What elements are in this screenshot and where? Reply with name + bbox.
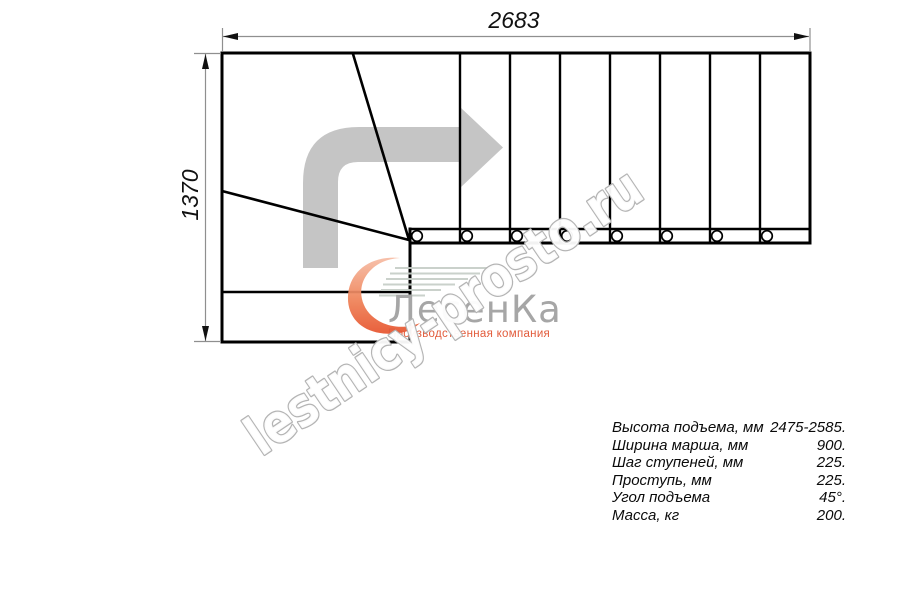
connector-hole	[512, 231, 523, 242]
spec-label: Масса, кг	[612, 507, 679, 525]
company-tagline: Производственная компания	[388, 328, 562, 340]
connector-hole	[462, 231, 473, 242]
spec-label: Высота подъема, мм	[612, 419, 764, 437]
stair-drawing-page: 2683 1370 ЛесенКа Производственная компа…	[0, 0, 900, 600]
dimension-height-label: 1370	[177, 158, 201, 232]
spec-label: Шаг ступеней, мм	[612, 454, 743, 472]
spec-row: Масса, кг 200.	[612, 507, 846, 525]
spec-label: Угол подъема	[612, 489, 710, 507]
spec-value: 225.	[817, 472, 846, 490]
dimension-arrowhead	[223, 33, 238, 40]
connector-hole	[662, 231, 673, 242]
connector-hole	[562, 231, 573, 242]
spec-value: 2475-2585.	[770, 419, 846, 437]
dimension-arrowhead	[202, 54, 209, 69]
spec-label: Ширина марша, мм	[612, 437, 748, 455]
connector-hole	[712, 231, 723, 242]
company-logo: ЛесенКа Производственная компания	[388, 293, 562, 340]
spec-label: Проступь, мм	[612, 472, 712, 490]
dimension-arrowhead	[794, 33, 809, 40]
spec-value: 900.	[817, 437, 846, 455]
spec-row: Высота подъема, мм 2475-2585.	[612, 419, 846, 437]
connector-hole	[412, 231, 423, 242]
connector-holes	[412, 231, 773, 242]
dimension-width-label: 2683	[459, 7, 569, 34]
dimension-arrowhead	[202, 326, 209, 341]
company-name: ЛесенКа	[388, 293, 562, 327]
spec-row: Угол подъема 45°.	[612, 489, 846, 507]
spec-value: 200.	[817, 507, 846, 525]
spec-row: Ширина марша, мм 900.	[612, 437, 846, 455]
spec-value: 45°.	[819, 489, 846, 507]
specs-table: Высота подъема, мм 2475-2585. Ширина мар…	[612, 419, 846, 525]
connector-hole	[762, 231, 773, 242]
spec-row: Проступь, мм 225.	[612, 472, 846, 490]
spec-value: 225.	[817, 454, 846, 472]
connector-hole	[612, 231, 623, 242]
spec-row: Шаг ступеней, мм 225.	[612, 454, 846, 472]
